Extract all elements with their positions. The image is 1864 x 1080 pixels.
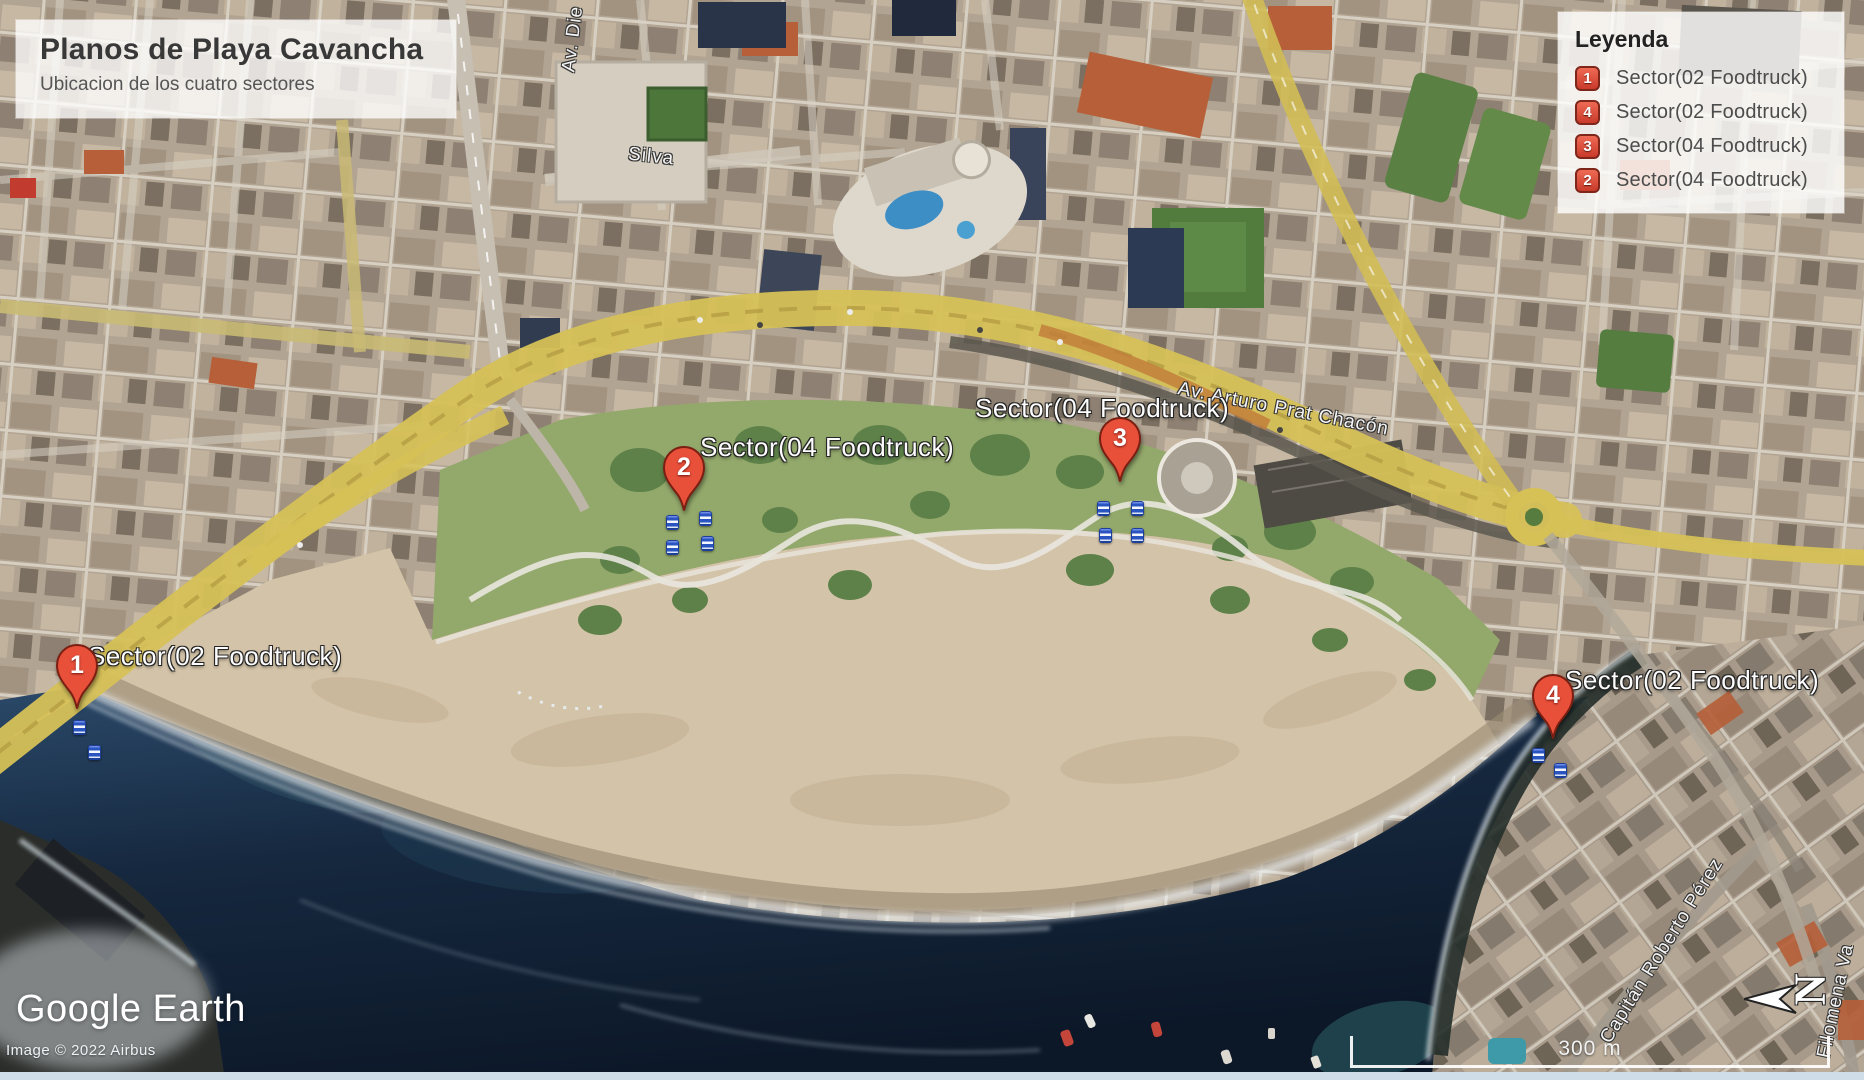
pin-number: 4: [1531, 681, 1575, 710]
foodtruck-icon[interactable]: [1097, 501, 1110, 516]
sector-label-4: Sector(02 Foodtruck): [1565, 665, 1819, 696]
legend-marker-badge: 1: [1575, 66, 1600, 91]
legend-marker-badge: 2: [1575, 168, 1600, 193]
legend-item: 1 Sector(02 Foodtruck): [1575, 66, 1844, 90]
pin-number: 2: [662, 453, 706, 482]
pin-number: 3: [1098, 424, 1142, 453]
pin-number: 1: [55, 651, 99, 680]
legend-marker-badge: 3: [1575, 134, 1600, 159]
legend-item: 3 Sector(04 Foodtruck): [1575, 134, 1844, 158]
foodtruck-icon[interactable]: [1131, 501, 1144, 516]
imagery-attribution: Image © 2022 Airbus: [6, 1042, 156, 1059]
title-box: Planos de Playa Cavancha Ubicacion de lo…: [16, 20, 456, 118]
map-pin-icon[interactable]: 3: [1098, 417, 1142, 483]
page-subtitle: Ubicacion de los cuatro sectores: [40, 74, 456, 96]
sector-label-2: Sector(04 Foodtruck): [700, 432, 954, 463]
bottom-edge-strip: [0, 1072, 1864, 1080]
map-pin-icon[interactable]: 2: [662, 446, 706, 512]
foodtruck-icon[interactable]: [1554, 763, 1567, 778]
street-label-silva: Silva: [627, 144, 675, 171]
map-pin-icon[interactable]: 4: [1531, 674, 1575, 740]
foodtruck-icon[interactable]: [1532, 748, 1545, 763]
map-pin-icon[interactable]: 1: [55, 644, 99, 710]
sector-label-1: Sector(02 Foodtruck): [88, 641, 342, 672]
legend-item-label: Sector(02 Foodtruck): [1616, 67, 1808, 90]
legend-item-label: Sector(04 Foodtruck): [1616, 169, 1808, 192]
scale-bar: 300 m: [1350, 1036, 1830, 1068]
scale-label: 300 m: [1353, 1037, 1827, 1061]
legend-item-label: Sector(04 Foodtruck): [1616, 135, 1808, 158]
foodtruck-icon[interactable]: [699, 511, 712, 526]
foodtruck-icon[interactable]: [701, 536, 714, 551]
north-label: N: [1784, 974, 1835, 1006]
legend: Leyenda 1 Sector(02 Foodtruck) 4 Sector(…: [1558, 12, 1844, 213]
legend-title: Leyenda: [1575, 26, 1844, 53]
google-earth-logo: Google Earth: [16, 988, 246, 1031]
legend-marker-badge: 4: [1575, 100, 1600, 125]
page-title: Planos de Playa Cavancha: [40, 33, 456, 67]
foodtruck-icon[interactable]: [1099, 528, 1112, 543]
north-indicator: N: [1738, 962, 1848, 1024]
foodtruck-icon[interactable]: [666, 540, 679, 555]
foodtruck-icon[interactable]: [666, 515, 679, 530]
foodtruck-icon[interactable]: [73, 720, 86, 735]
foodtruck-icon[interactable]: [1131, 528, 1144, 543]
legend-item: 2 Sector(04 Foodtruck): [1575, 168, 1844, 192]
legend-item: 4 Sector(02 Foodtruck): [1575, 100, 1844, 124]
foodtruck-icon[interactable]: [88, 745, 101, 760]
google-earth-view: Av. Arturo Prat Chacón Silva Av. Die Cap…: [0, 0, 1864, 1080]
legend-item-label: Sector(02 Foodtruck): [1616, 101, 1808, 124]
